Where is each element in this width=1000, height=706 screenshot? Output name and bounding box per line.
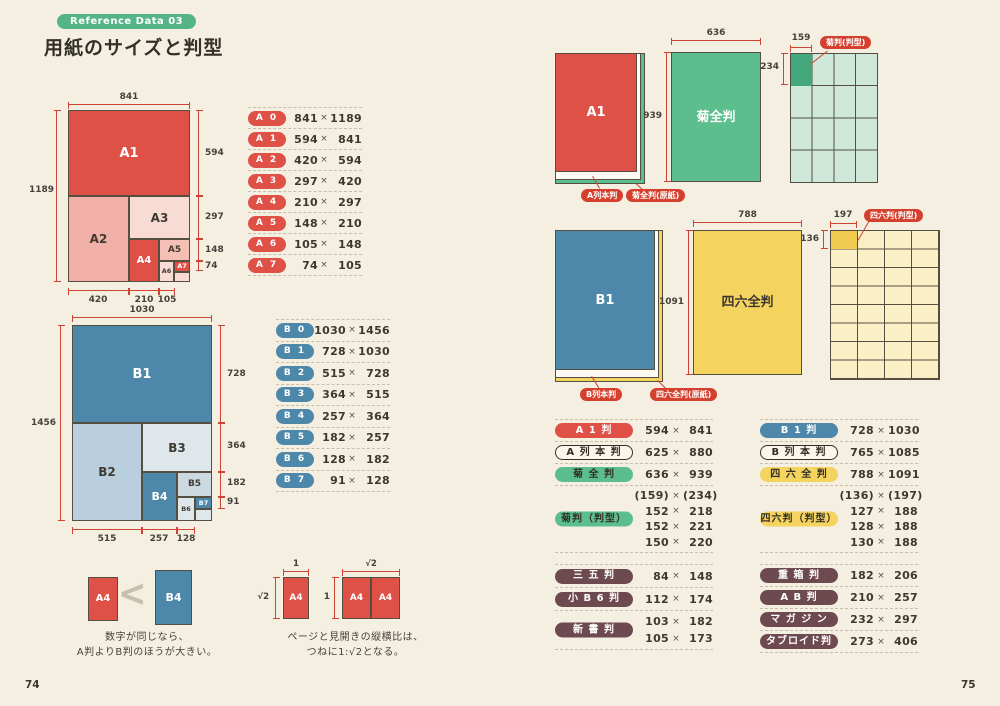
times-sign: × — [874, 491, 888, 501]
width-value: 273 — [838, 635, 874, 648]
width-value: 1030 — [314, 324, 346, 337]
width-value: 636 — [633, 468, 669, 481]
times-sign: × — [318, 218, 330, 228]
table-row: タブロイド判273×406 — [760, 631, 918, 653]
times-sign: × — [318, 113, 330, 123]
b-height-dim-line — [60, 325, 61, 521]
height-value: 257 — [358, 431, 390, 444]
table-row: B 1 判728×1030 — [760, 420, 918, 442]
a-width-dim-label: 841 — [68, 92, 190, 102]
b5-dim-line — [220, 472, 221, 497]
compare-caption-2: A判よりB判のほうが大きい。 — [52, 643, 242, 658]
a1-dim-label: 594 — [205, 148, 231, 158]
a5-dim-label: 148 — [205, 245, 231, 255]
times-sign: × — [669, 617, 683, 627]
b4-dim-line — [142, 529, 177, 530]
width-value: 148 — [286, 217, 318, 230]
compare-a4: A4 — [88, 577, 118, 621]
page-title: 用紙のサイズと判型 — [44, 33, 223, 60]
table-row: B 2515×728 — [276, 363, 390, 385]
width-value: 105 — [286, 238, 318, 251]
width-value: 594 — [286, 133, 318, 146]
compare-b4: B4 — [155, 570, 192, 625]
width-value: 515 — [314, 367, 346, 380]
times-sign: × — [669, 470, 683, 480]
ratio-caption-2: つねに1:√2となる。 — [258, 643, 453, 658]
times-sign: × — [874, 537, 888, 547]
a5-cell: A5 — [159, 239, 190, 261]
height-value: 257 — [888, 591, 918, 604]
b-height-dim-label: 1456 — [28, 418, 56, 428]
size-badge: A B 判 — [760, 590, 838, 605]
width-value: 420 — [286, 154, 318, 167]
kiku-zenhan-sheet: 菊全判 — [671, 52, 761, 182]
a-height-dim-label: 1189 — [26, 185, 54, 195]
less-than-symbol: < — [118, 572, 147, 616]
height-value: (234) — [683, 489, 713, 502]
spread-side-dim-line — [334, 577, 335, 619]
a2-dim-label: 420 — [83, 295, 113, 305]
width-value: 84 — [633, 570, 669, 583]
size-badge: A 0 — [248, 111, 286, 126]
table-row: 菊 全 判636×939 — [555, 464, 713, 486]
b-series-diagram: B1 B2 B3 B4 B5 B6 B7 — [72, 325, 212, 521]
kiku-hangata-rows: 菊判（判型） (159)×(234) 152×218 152×221 150×2… — [555, 486, 713, 553]
shiroku-cell-width-dim-line — [830, 223, 857, 224]
size-badge: B 1 — [276, 344, 314, 359]
b5-cell: B5 — [177, 472, 212, 497]
width-value: 128 — [838, 520, 874, 533]
times-sign: × — [669, 522, 683, 532]
b1-dim-line — [220, 325, 221, 423]
size-badge: A 5 — [248, 216, 286, 231]
a5-dim-line — [198, 239, 199, 261]
size-badge: A 6 — [248, 237, 286, 252]
height-value: 105 — [330, 259, 362, 272]
b2-dim-label: 515 — [87, 534, 127, 544]
size-badge: 小 B 6 判 — [555, 592, 633, 607]
height-value: 128 — [358, 474, 390, 487]
spread-side-dim-label: 1 — [318, 592, 330, 602]
a2-dim-line — [68, 290, 129, 291]
width-value: 257 — [314, 410, 346, 423]
page-number-right: 75 — [961, 679, 976, 691]
size-badge: B 0 — [276, 323, 314, 338]
width-value: 594 — [633, 424, 669, 437]
b8-area — [195, 509, 212, 521]
times-sign: × — [874, 470, 888, 480]
width-value: 625 — [633, 446, 669, 459]
b6-dim-label: 128 — [171, 534, 201, 544]
width-value: 150 — [633, 536, 669, 549]
times-sign: × — [346, 325, 358, 335]
height-value: 218 — [683, 505, 713, 518]
height-value: (197) — [888, 489, 918, 502]
b3-dim-label: 364 — [227, 441, 253, 451]
shiroku-hangata-grid — [830, 230, 940, 380]
a4-cell: A4 — [129, 239, 159, 282]
kiku-width-dim-line — [671, 40, 761, 41]
width-value: 232 — [838, 613, 874, 626]
b2-dim-line — [72, 529, 142, 530]
table-row: B 4257×364 — [276, 406, 390, 428]
height-value: 1030 — [888, 424, 918, 437]
size-badge: B 5 — [276, 430, 314, 445]
b6-cell: B6 — [177, 497, 195, 521]
size-badge: 四六判（判型） — [760, 512, 838, 527]
size-badge: A 列 本 判 — [555, 445, 633, 460]
table-row: 127×188 — [838, 504, 918, 520]
table-row: 四 六 全 判788×1091 — [760, 464, 918, 486]
height-value: 220 — [683, 536, 713, 549]
kiku-cell-height-dim-line — [783, 53, 784, 85]
size-badge: B 4 — [276, 409, 314, 424]
table-row: A 5148×210 — [248, 213, 362, 234]
times-sign: × — [346, 411, 358, 421]
times-sign: × — [669, 594, 683, 604]
compare-caption-1: 数字が同じなら、 — [52, 628, 242, 643]
b-size-table: B 01030×1456 B 1728×1030 B 2515×728 B 33… — [276, 319, 390, 492]
times-sign: × — [874, 615, 888, 625]
times-sign: × — [318, 155, 330, 165]
shiroku-height-dim-line — [688, 230, 689, 375]
table-row: 105×173 — [633, 630, 713, 647]
size-badge: 三 五 判 — [555, 569, 633, 584]
a1-dim-line — [198, 110, 199, 196]
table-row: A 列 本 判625×880 — [555, 442, 713, 464]
shiroku-width-dim-line — [693, 222, 802, 223]
times-sign: × — [318, 239, 330, 249]
kiku-genshi-callout: 菊全判(原紙) — [626, 189, 685, 202]
width-value: 765 — [838, 446, 874, 459]
b1-dim-label: 728 — [227, 369, 253, 379]
width-value: 364 — [314, 388, 346, 401]
shiroku-size-table: B 1 判728×1030 B 列 本 判765×1085 四 六 全 判788… — [760, 419, 918, 553]
b2-cell: B2 — [72, 423, 142, 521]
times-sign: × — [346, 390, 358, 400]
b5-dim-label: 182 — [227, 478, 253, 488]
table-row: 128×188 — [838, 519, 918, 535]
table-row: 130×188 — [838, 535, 918, 551]
height-value: 1456 — [358, 324, 390, 337]
times-sign: × — [346, 368, 358, 378]
shiroku-cell-width-dim-label: 197 — [826, 210, 860, 220]
kiku-cell-width-dim-label: 159 — [786, 33, 816, 43]
width-value: 728 — [314, 345, 346, 358]
height-value: 728 — [358, 367, 390, 380]
height-value: 297 — [888, 613, 918, 626]
table-row: A 774×105 — [248, 255, 362, 276]
spread-right-page: A4 — [371, 577, 400, 619]
misc-size-table-right: 重 箱 判182×206 A B 判210×257 マ ガ ジ ン232×297… — [760, 564, 918, 653]
times-sign: × — [874, 506, 888, 516]
shiroku-height-dim-label: 1091 — [656, 297, 684, 307]
size-badge: 新 書 判 — [555, 623, 633, 638]
height-value: 148 — [683, 570, 713, 583]
times-sign: × — [874, 571, 888, 581]
size-badge: A 4 — [248, 195, 286, 210]
size-badge: A 3 — [248, 174, 286, 189]
table-row: 小 B 6 判112×174 — [555, 588, 713, 611]
times-sign: × — [874, 593, 888, 603]
size-badge: 四 六 全 判 — [760, 467, 838, 482]
size-badge: 菊判（判型） — [555, 512, 633, 527]
table-row: B 列 本 判765×1085 — [760, 442, 918, 464]
shiroku-genshi-callout: 四六全判(原紙) — [650, 388, 717, 401]
shiroku-hangata-callout: 四六判(判型) — [864, 209, 923, 222]
table-row: マ ガ ジ ン232×297 — [760, 609, 918, 631]
page-number-left: 74 — [25, 679, 40, 691]
width-value: 728 — [838, 424, 874, 437]
times-sign: × — [874, 448, 888, 458]
size-badge: タブロイド判 — [760, 634, 838, 649]
times-sign: × — [318, 197, 330, 207]
height-value: 364 — [358, 410, 390, 423]
height-value: 406 — [888, 635, 918, 648]
height-value: 182 — [683, 615, 713, 628]
b1-cell: B1 — [72, 325, 212, 423]
a7-cell: A7 — [174, 261, 190, 272]
a-height-dim-line — [56, 110, 57, 282]
a8-area — [174, 272, 190, 282]
size-badge: A 2 — [248, 153, 286, 168]
table-row: B 6128×182 — [276, 449, 390, 471]
height-value: 841 — [683, 424, 713, 437]
table-row: 三 五 判84×148 — [555, 565, 713, 588]
a1-sheet: A1 — [555, 53, 637, 172]
width-value: 788 — [838, 468, 874, 481]
times-sign: × — [874, 426, 888, 436]
height-value: 174 — [683, 593, 713, 606]
b4-cell: B4 — [142, 472, 177, 521]
times-sign: × — [346, 476, 358, 486]
width-value: 152 — [633, 505, 669, 518]
a6-dim-line — [159, 290, 175, 291]
times-sign: × — [669, 426, 683, 436]
b7-dim-line — [220, 497, 221, 509]
height-value: 182 — [358, 453, 390, 466]
height-value: 188 — [888, 520, 918, 533]
kiku-width-dim-label: 636 — [671, 28, 761, 38]
table-row: (136)×(197) — [838, 488, 918, 504]
times-sign: × — [346, 347, 358, 357]
single-side-dim-label: √2 — [251, 592, 269, 602]
size-badge: A 1 判 — [555, 423, 633, 438]
times-sign: × — [318, 176, 330, 186]
a-retsu-hon-callout: A列本判 — [581, 189, 623, 202]
width-value: (159) — [633, 489, 669, 502]
times-sign: × — [874, 522, 888, 532]
width-value: 127 — [838, 505, 874, 518]
table-row: A 4210×297 — [248, 192, 362, 213]
ratio-single-a4: A4 — [283, 577, 309, 619]
shinsho-rows: 新 書 判 103×182 105×173 — [555, 611, 713, 650]
b6-dim-line — [177, 529, 195, 530]
table-row: A 1594×841 — [248, 129, 362, 150]
kiku-height-dim-line — [666, 52, 667, 182]
times-sign: × — [669, 491, 683, 501]
width-value: 74 — [286, 259, 318, 272]
table-row: B 5182×257 — [276, 428, 390, 450]
a2-cell: A2 — [68, 196, 129, 282]
times-sign: × — [346, 433, 358, 443]
size-badge: A 1 — [248, 132, 286, 147]
width-value: 297 — [286, 175, 318, 188]
table-row: B 01030×1456 — [276, 320, 390, 342]
size-badge: A 7 — [248, 258, 286, 273]
times-sign: × — [318, 260, 330, 270]
b1-sheet: B1 — [555, 230, 655, 370]
ratio-spread: A4 A4 — [342, 577, 400, 619]
width-value: 182 — [314, 431, 346, 444]
height-value: 841 — [330, 133, 362, 146]
book-spread: Reference Data 03 用紙のサイズと判型 841 1189 A1 … — [0, 0, 1000, 706]
height-value: 188 — [888, 536, 918, 549]
height-value: 1091 — [888, 468, 918, 481]
a6-dim-label: 105 — [152, 295, 182, 305]
height-value: 188 — [888, 505, 918, 518]
size-badge: B 3 — [276, 387, 314, 402]
width-value: 128 — [314, 453, 346, 466]
misc-size-table-left: 三 五 判84×148 小 B 6 判112×174 新 書 判 103×182… — [555, 564, 713, 650]
height-value: 939 — [683, 468, 713, 481]
height-value: 173 — [683, 632, 713, 645]
table-row: A B 判210×257 — [760, 587, 918, 609]
table-row: 103×182 — [633, 613, 713, 630]
single-top-dim-line — [283, 571, 309, 572]
b4-dim-label: 257 — [144, 534, 174, 544]
width-value: 130 — [838, 536, 874, 549]
a-width-dim-line — [68, 104, 190, 105]
shiroku-cell-height-dim-label: 136 — [799, 234, 819, 244]
b-width-dim-line — [72, 317, 212, 318]
times-sign: × — [669, 448, 683, 458]
width-value: (136) — [838, 489, 874, 502]
height-value: 1085 — [888, 446, 918, 459]
table-row: B 791×128 — [276, 471, 390, 493]
table-row: 152×218 — [633, 504, 713, 520]
table-row: B 3364×515 — [276, 385, 390, 407]
width-value: 210 — [838, 591, 874, 604]
b3-dim-line — [220, 423, 221, 472]
height-value: 210 — [330, 217, 362, 230]
size-badge: B 列 本 判 — [760, 445, 838, 460]
reference-badge: Reference Data 03 — [57, 14, 196, 29]
times-sign: × — [669, 537, 683, 547]
width-value: 152 — [633, 520, 669, 533]
kiku-height-dim-label: 939 — [636, 111, 662, 121]
table-row: (159)×(234) — [633, 488, 713, 504]
a4-dim-line — [129, 290, 159, 291]
spread-top-dim-line — [342, 571, 400, 572]
a-series-diagram: A1 A2 A3 A4 A5 A6 A7 — [68, 110, 190, 282]
width-value: 112 — [633, 593, 669, 606]
size-badge: B 6 — [276, 452, 314, 467]
height-value: 148 — [330, 238, 362, 251]
a3-cell: A3 — [129, 196, 190, 239]
size-badge: B 7 — [276, 473, 314, 488]
table-row: A 0841×1189 — [248, 108, 362, 129]
width-value: 210 — [286, 196, 318, 209]
height-value: 1030 — [358, 345, 390, 358]
table-row: A 3297×420 — [248, 171, 362, 192]
a7-dim-label: 74 — [205, 261, 231, 271]
height-value: 206 — [888, 569, 918, 582]
b-width-dim-label: 1030 — [72, 305, 212, 315]
height-value: 420 — [330, 175, 362, 188]
height-value: 515 — [358, 388, 390, 401]
height-value: 594 — [330, 154, 362, 167]
shiroku-zenhan-sheet: 四六全判 — [693, 230, 802, 375]
width-value: 103 — [633, 615, 669, 628]
size-badge: マ ガ ジ ン — [760, 612, 838, 627]
ratio-caption-1: ページと見開きの縦横比は、 — [258, 628, 453, 643]
b3-cell: B3 — [142, 423, 212, 472]
table-row: A 2420×594 — [248, 150, 362, 171]
times-sign: × — [669, 571, 683, 581]
table-row: B 1728×1030 — [276, 342, 390, 364]
width-value: 182 — [838, 569, 874, 582]
single-side-dim-line — [275, 577, 276, 619]
height-value: 297 — [330, 196, 362, 209]
a1-cell: A1 — [68, 110, 190, 196]
spread-left-page: A4 — [342, 577, 371, 619]
width-value: 105 — [633, 632, 669, 645]
size-badge: B 2 — [276, 366, 314, 381]
size-badge: 菊 全 判 — [555, 467, 633, 482]
a-size-table: A 0841×1189 A 1594×841 A 2420×594 A 3297… — [248, 107, 362, 276]
a3-dim-label: 297 — [205, 212, 231, 222]
times-sign: × — [318, 134, 330, 144]
shiroku-cell-height-dim-line — [823, 230, 824, 249]
height-value: 880 — [683, 446, 713, 459]
times-sign: × — [874, 637, 888, 647]
times-sign: × — [346, 454, 358, 464]
shiroku-hangata-rows: 四六判（判型） (136)×(197) 127×188 128×188 130×… — [760, 486, 918, 553]
table-row: 152×221 — [633, 519, 713, 535]
size-badge: B 1 判 — [760, 423, 838, 438]
width-value: 91 — [314, 474, 346, 487]
kiku-cell-width-dim-line — [790, 47, 812, 48]
shiroku-width-dim-label: 788 — [693, 210, 802, 220]
b-retsu-hon-callout: B列本判 — [580, 388, 622, 401]
table-row: A 1 判594×841 — [555, 420, 713, 442]
a3-dim-line — [198, 196, 199, 239]
b7-cell: B7 — [195, 497, 212, 509]
table-row: A 6105×148 — [248, 234, 362, 255]
kiku-cell-height-dim-label: 234 — [759, 62, 779, 72]
a7-dim-line — [198, 261, 199, 271]
table-row: 重 箱 判182×206 — [760, 565, 918, 587]
a6-cell: A6 — [159, 261, 174, 282]
times-sign: × — [669, 506, 683, 516]
height-value: 1189 — [330, 112, 362, 125]
single-top-dim-label: 1 — [283, 559, 309, 569]
kiku-size-table: A 1 判594×841 A 列 本 判625×880 菊 全 判636×939… — [555, 419, 713, 553]
spread-top-dim-label: √2 — [342, 559, 400, 569]
width-value: 841 — [286, 112, 318, 125]
times-sign: × — [669, 634, 683, 644]
size-badge: 重 箱 判 — [760, 568, 838, 583]
height-value: 221 — [683, 520, 713, 533]
b7-dim-label: 91 — [227, 497, 253, 507]
kiku-hangata-grid — [790, 53, 878, 183]
kiku-hangata-callout: 菊判(判型) — [820, 36, 871, 49]
table-row: 150×220 — [633, 535, 713, 551]
